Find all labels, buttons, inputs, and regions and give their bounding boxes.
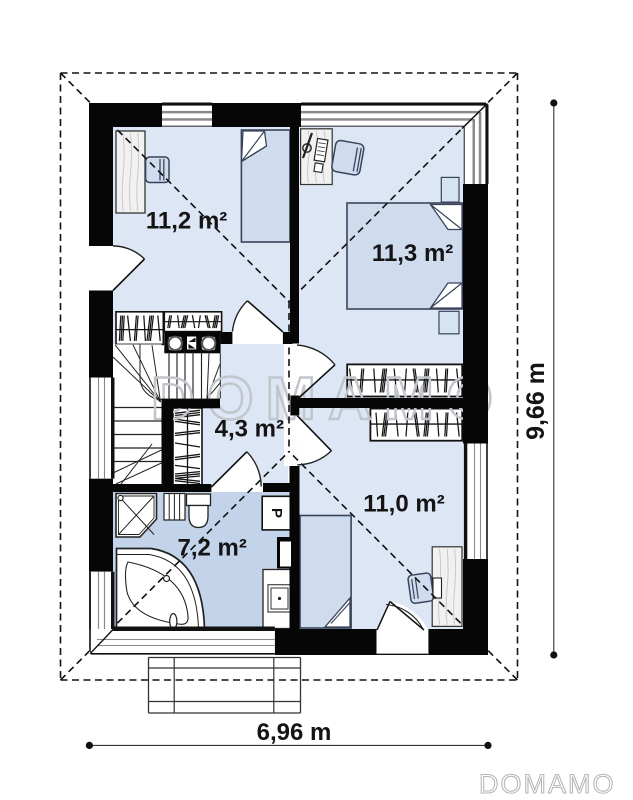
- svg-text:4,3 m²: 4,3 m²: [215, 416, 284, 443]
- svg-text:11,2 m²: 11,2 m²: [146, 208, 227, 235]
- svg-text:P: P: [268, 508, 285, 518]
- svg-text:DOMAMO: DOMAMO: [479, 769, 616, 799]
- svg-text:6,96 m: 6,96 m: [257, 719, 332, 746]
- svg-text:11,3 m²: 11,3 m²: [372, 240, 453, 267]
- svg-text:11,0 m²: 11,0 m²: [363, 491, 444, 518]
- svg-text:7,2 m²: 7,2 m²: [178, 534, 247, 561]
- svg-text:9,66 m: 9,66 m: [522, 362, 550, 440]
